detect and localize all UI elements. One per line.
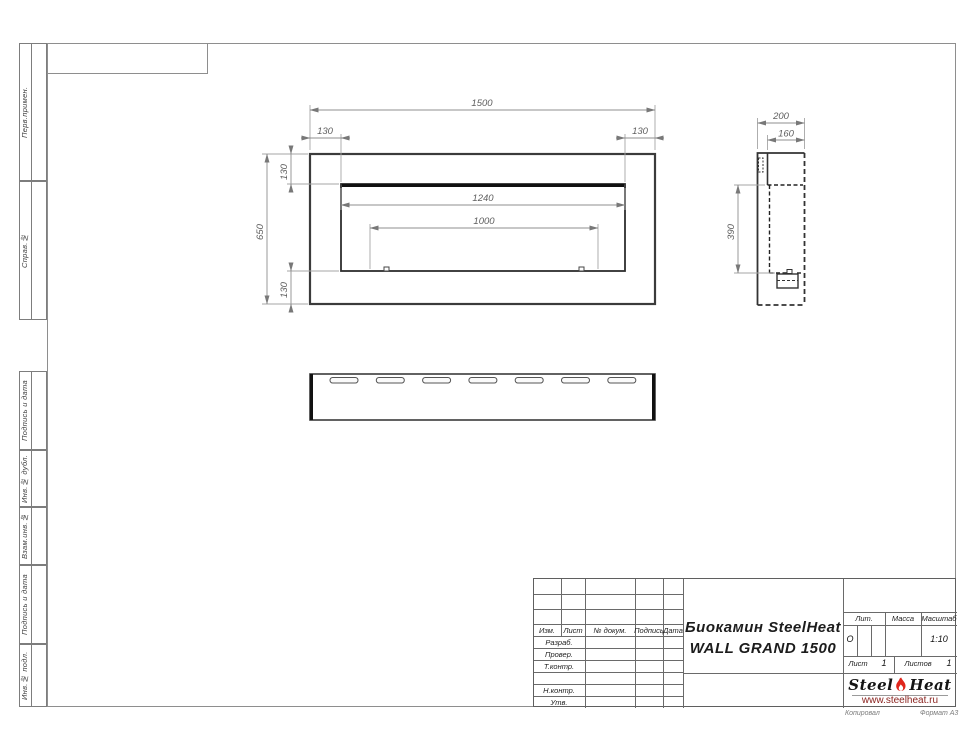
col-podpis: Подпись <box>634 626 664 635</box>
copied-label: Копировал <box>845 710 880 717</box>
scale-label: Масштаб <box>921 614 956 623</box>
margin-label: Подпись и дата <box>20 566 31 643</box>
sheets-label: Листов <box>904 659 931 668</box>
drawing-sheet: 1500 130 130 650 130 130 1240 1000 <box>0 0 970 749</box>
lit-value: О <box>846 634 853 644</box>
margin-cell-inv-dubl: Инв.№ дубл. <box>19 450 47 507</box>
margin-cell-perv-primen: Перв.примен. <box>19 43 47 181</box>
logo-steel-text: Steel <box>848 676 893 694</box>
margin-cell-inv-podl: Инв.№ подл. <box>19 644 47 707</box>
margin-label: Инв.№ подл. <box>20 645 31 706</box>
format-label: Формат А3 <box>920 710 958 717</box>
col-list: Лист <box>563 626 582 635</box>
doc-title-line1: Биокамин SteelHeat <box>685 617 841 638</box>
doc-title-line2: WALL GRAND 1500 <box>690 638 836 659</box>
row-prover: Провер. <box>545 650 573 659</box>
col-izm: Изм. <box>539 626 555 635</box>
logo-heat-text: Heat <box>909 676 951 694</box>
document-title: Биокамин SteelHeat WALL GRAND 1500 <box>683 579 843 673</box>
margin-cell-vzam-inv: Взам.инв.№ <box>19 507 47 565</box>
margin-label: Инв.№ дубл. <box>20 451 31 506</box>
col-data: Дата <box>663 626 683 635</box>
row-utv: Утв. <box>550 698 567 707</box>
row-razrab: Разраб. <box>545 638 572 647</box>
sheet-label: Лист <box>848 659 867 668</box>
title-block: Изм. Лист № докум. Подпись Дата Разраб. … <box>533 578 956 707</box>
margin-label: Перв.примен. <box>20 44 31 180</box>
mass-label: Масса <box>892 614 914 623</box>
margin-label: Взам.инв.№ <box>20 508 31 564</box>
top-reference-stamp <box>47 43 208 74</box>
row-nkontr: Н.контр. <box>543 686 575 695</box>
sheets-value: 1 <box>946 658 951 668</box>
margin-cell-podpis-data-2: Подпись и дата <box>19 565 47 644</box>
company-logo: Steel Heat www.steelheat.ru <box>843 673 957 708</box>
col-docnum: № докум. <box>593 626 626 635</box>
scale-value: 1:10 <box>930 634 948 644</box>
margin-cell-podpis-data-1: Подпись и дата <box>19 371 47 450</box>
flame-icon <box>894 677 908 693</box>
logo-url: www.steelheat.ru <box>862 696 938 706</box>
margin-label: Подпись и дата <box>20 372 31 449</box>
margin-label: Справ.№ <box>20 182 31 319</box>
margin-cell-sprav-no: Справ.№ <box>19 181 47 320</box>
lit-label: Лит. <box>855 614 873 623</box>
row-tkontr: Т.контр. <box>544 662 574 671</box>
sheet-value: 1 <box>881 658 886 668</box>
